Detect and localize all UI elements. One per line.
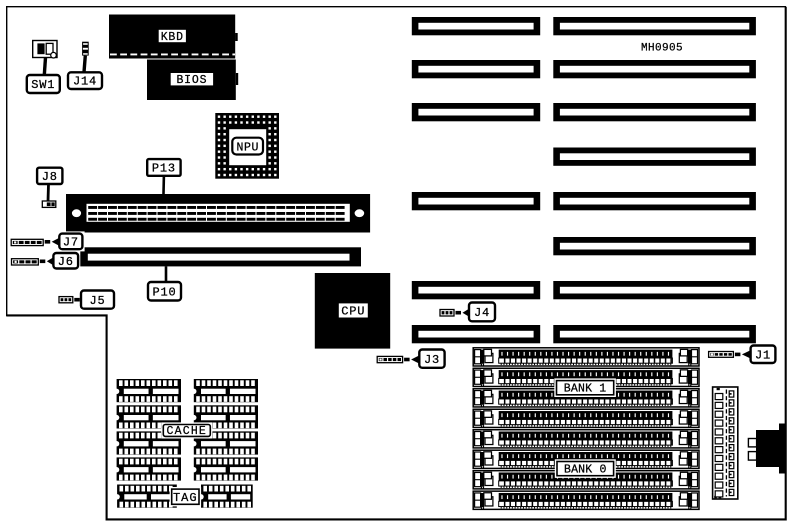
svg-text:TAG: TAG xyxy=(173,491,198,505)
svg-text:J7: J7 xyxy=(63,236,79,250)
svg-text:J3: J3 xyxy=(424,353,440,367)
svg-text:J4: J4 xyxy=(474,306,490,320)
svg-text:KBD: KBD xyxy=(161,31,184,44)
svg-text:CPU: CPU xyxy=(341,304,365,318)
svg-text:CACHE: CACHE xyxy=(167,425,208,438)
svg-text:J1: J1 xyxy=(755,349,771,363)
svg-text:P13: P13 xyxy=(152,162,176,176)
svg-text:P10: P10 xyxy=(152,285,176,299)
svg-text:J5: J5 xyxy=(89,294,105,308)
svg-text:J6: J6 xyxy=(58,255,74,269)
svg-text:NPU: NPU xyxy=(236,141,259,154)
svg-text:BANK 0: BANK 0 xyxy=(564,464,607,477)
svg-text:J14: J14 xyxy=(73,75,97,89)
svg-text:MH0905: MH0905 xyxy=(641,43,683,55)
svg-text:BIOS: BIOS xyxy=(176,74,207,87)
svg-text:BANK 1: BANK 1 xyxy=(564,383,607,396)
svg-text:SW1: SW1 xyxy=(31,78,55,92)
svg-text:J8: J8 xyxy=(42,170,58,184)
